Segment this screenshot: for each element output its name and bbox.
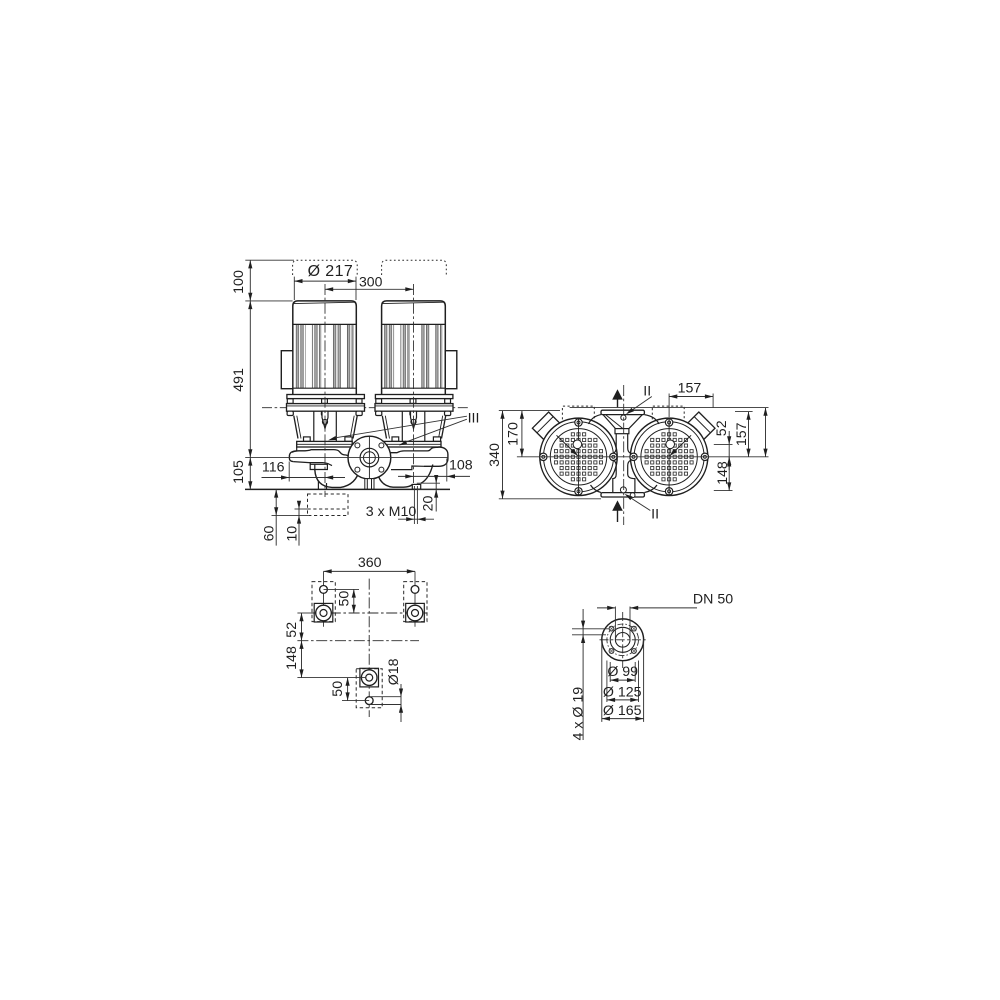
svg-text:105: 105 [231, 460, 247, 484]
svg-text:Ø18: Ø18 [386, 658, 402, 685]
svg-text:3 x M10: 3 x M10 [366, 504, 417, 520]
svg-text:III: III [468, 410, 480, 426]
svg-text:20: 20 [421, 496, 437, 512]
svg-text:148: 148 [284, 646, 300, 670]
svg-text:Ø 217: Ø 217 [308, 263, 354, 280]
svg-text:DN 50: DN 50 [693, 591, 733, 607]
svg-text:60: 60 [262, 526, 278, 542]
svg-text:50: 50 [336, 591, 352, 607]
svg-text:100: 100 [231, 270, 247, 294]
svg-text:Ø 125: Ø 125 [603, 685, 642, 701]
svg-text:340: 340 [487, 443, 503, 467]
svg-text:170: 170 [505, 422, 521, 446]
svg-text:4 x Ø 19: 4 x Ø 19 [570, 687, 586, 741]
svg-text:300: 300 [359, 274, 383, 290]
svg-text:52: 52 [284, 622, 300, 638]
svg-text:116: 116 [262, 460, 285, 476]
svg-text:491: 491 [231, 368, 247, 392]
svg-text:157: 157 [678, 380, 702, 396]
svg-text:108: 108 [449, 458, 473, 474]
svg-text:Ø 99: Ø 99 [607, 664, 638, 680]
svg-text:II: II [643, 383, 651, 399]
svg-text:157: 157 [734, 422, 750, 446]
svg-text:52: 52 [714, 420, 730, 436]
svg-text:50: 50 [330, 681, 346, 697]
svg-text:360: 360 [358, 555, 382, 571]
svg-text:10: 10 [285, 526, 301, 542]
svg-text:148: 148 [715, 461, 731, 485]
svg-text:II: II [651, 507, 659, 523]
